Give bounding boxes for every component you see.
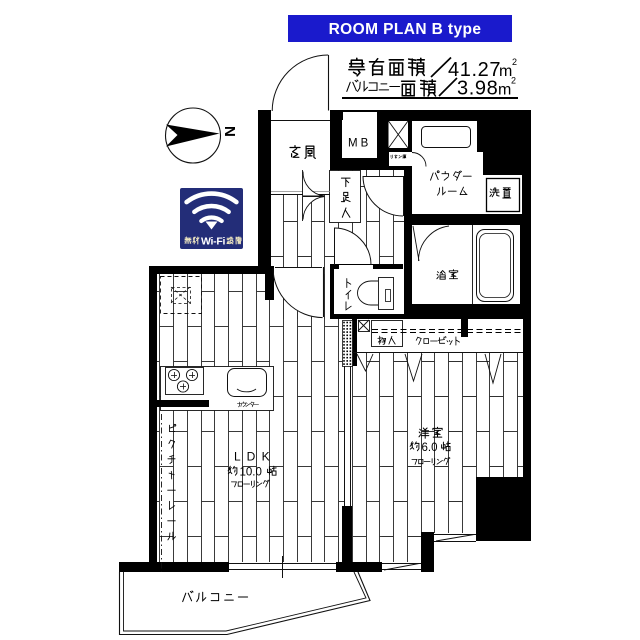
- svg-text:m: m: [498, 82, 511, 99]
- svg-text:ROOM PLAN B type: ROOM PLAN B type: [329, 21, 482, 38]
- svg-text:10.0: 10.0: [240, 467, 262, 479]
- svg-text:Wi-Fi: Wi-Fi: [201, 236, 225, 248]
- svg-text:2: 2: [511, 76, 516, 86]
- svg-text:3.98: 3.98: [457, 78, 498, 100]
- svg-text:L D K: L D K: [234, 450, 271, 464]
- svg-text:MB: MB: [348, 138, 371, 150]
- svg-text:2: 2: [512, 57, 517, 67]
- svg-text:6.0: 6.0: [422, 442, 438, 454]
- svg-text:N: N: [221, 126, 238, 137]
